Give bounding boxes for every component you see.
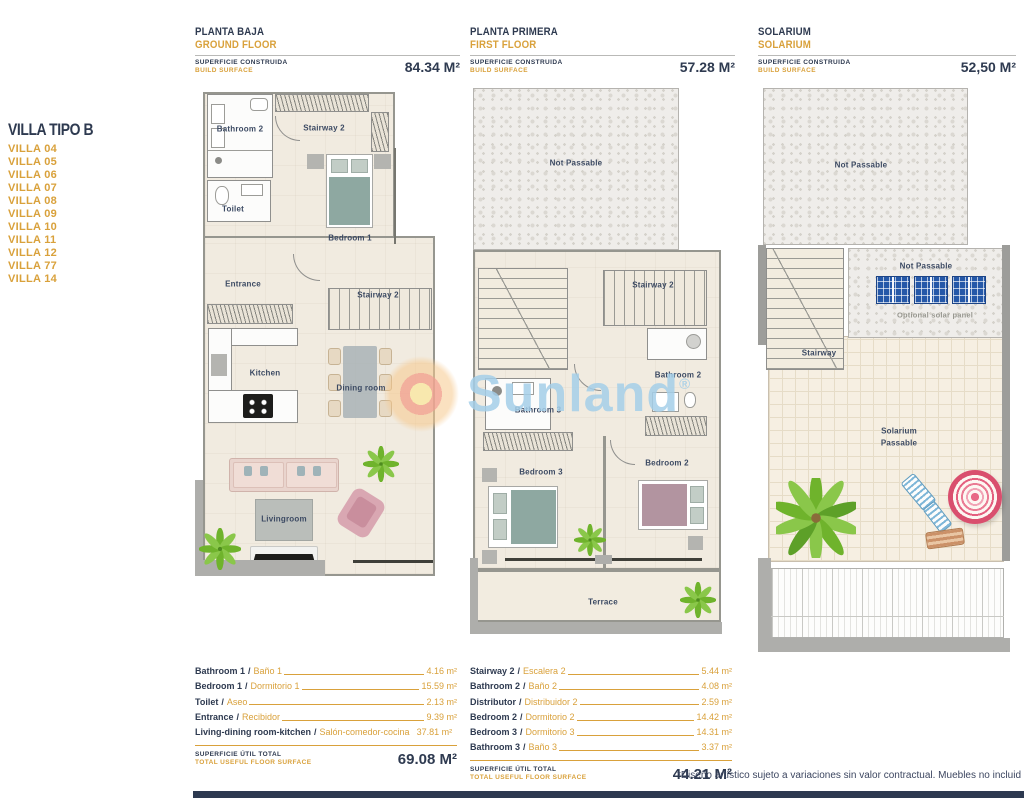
build-surface-value: 84.34 M²	[405, 59, 460, 75]
leader-line	[577, 735, 695, 736]
villa-item: VILLA 11	[8, 234, 56, 246]
room-label-optional-solar: Optional solar panel	[897, 311, 973, 320]
nightstand	[688, 536, 703, 550]
room-area: 5.44 m²	[701, 666, 732, 677]
plant	[574, 524, 606, 556]
separator: /	[523, 742, 526, 753]
leader-line	[580, 704, 700, 705]
room-label-bedroom2: Bedroom 2	[645, 459, 689, 468]
plant	[199, 528, 241, 570]
room-area: 4.08 m²	[701, 681, 732, 692]
bed	[638, 480, 708, 530]
room-name-en: Entrance	[195, 712, 234, 723]
room-label-kitchen: Kitchen	[250, 369, 281, 378]
toilet-fixture	[215, 186, 229, 205]
total-value: 69.08 M²	[398, 751, 457, 768]
separator: /	[314, 727, 317, 738]
window	[505, 558, 595, 561]
plan-title-es: SOLARIUM	[758, 26, 985, 38]
room-name-es: Aseo	[227, 697, 248, 708]
total-label-es: SUPERFICIE ÚTIL TOTAL	[470, 766, 586, 773]
separator: /	[237, 712, 240, 723]
surface-label-en: BUILD SURFACE	[758, 67, 851, 74]
villa-item: VILLA 06	[8, 169, 57, 181]
plan-title-en: FIRST FLOOR	[470, 39, 703, 51]
leader-line	[577, 720, 695, 721]
separator: /	[520, 727, 523, 738]
surface-label-es: SUPERFICIE CONSTRUIDA	[470, 59, 563, 66]
washer	[686, 334, 701, 349]
table-row: Living-dining room-kitchen / Salón-comed…	[195, 727, 457, 738]
room-area: 2.13 m²	[426, 697, 457, 708]
leader-line	[302, 689, 420, 690]
solarium-header: SOLARIUM SOLARIUM SUPERFICIE CONSTRUIDA …	[758, 26, 1016, 75]
toilet-fixture	[684, 392, 696, 408]
villa-item: VILLA 14	[8, 273, 57, 285]
build-surface-value: 52,50 M²	[961, 59, 1016, 75]
room-name-en: Bedroom 3	[470, 727, 517, 738]
first-floor-plan: Not Passable Stairway 2 Bathroom 2 Bathr…	[470, 88, 735, 648]
ground-floor-plan: Bathroom 2 Stairway 2 Toilet Bedroom 1 E…	[195, 88, 460, 593]
room-label-bedroom3: Bedroom 3	[519, 468, 563, 477]
wardrobe	[645, 416, 707, 436]
wall-pier	[595, 555, 612, 564]
total-label-es: SUPERFICIE ÚTIL TOTAL	[195, 751, 311, 758]
room-name-es: Dormitorio 2	[526, 712, 575, 723]
surface-label-es: SUPERFICIE CONSTRUIDA	[758, 59, 851, 66]
room-label-dining: Dining room	[336, 384, 385, 393]
shower-divider	[208, 150, 272, 151]
room-label-stairway2: Stairway 2	[632, 281, 674, 290]
table-row: Bedroom 2 / Dormitorio 2 14.42 m²	[470, 712, 732, 723]
room-name-es: Escalera 2	[523, 666, 566, 677]
parasol	[948, 470, 1002, 524]
room-name-es: Baño 1	[254, 666, 283, 677]
leader-line	[249, 704, 424, 705]
room-area: 9.39 m²	[426, 712, 457, 723]
table-row: Toilet / Aseo 2.13 m²	[195, 697, 457, 708]
ground-floor-table: Bathroom 1 / Baño 1 4.16 m² Bedroom 1 / …	[195, 666, 457, 768]
stairway-room	[478, 268, 568, 370]
solar-panel	[876, 276, 910, 304]
plan-title-es: PLANTA PRIMERA	[470, 26, 703, 38]
exterior-wall	[470, 558, 478, 634]
leader-line	[282, 720, 424, 721]
room-name-en: Bathroom 2	[470, 681, 520, 692]
divider	[470, 55, 735, 56]
room-label-entrance: Entrance	[225, 280, 261, 289]
total-label-en: TOTAL USEFUL FLOOR SURFACE	[195, 759, 311, 766]
leader-line	[568, 674, 700, 675]
table-row: Bathroom 2 / Baño 2 4.08 m²	[470, 681, 732, 692]
separator: /	[518, 666, 521, 677]
exterior-wall	[1002, 245, 1010, 561]
room-label-living: Livingroom	[261, 515, 307, 524]
room-area: 14.42 m²	[696, 712, 732, 723]
separator: /	[520, 712, 523, 723]
wardrobe	[275, 94, 369, 112]
room-area: 3.37 m²	[701, 742, 732, 753]
wardrobe	[483, 432, 573, 451]
page-title: VILLA TIPO B	[8, 120, 93, 140]
villa-item: VILLA 77	[8, 260, 57, 272]
room-name-es: Baño 2	[529, 681, 558, 692]
room-name-en: Living-dining room-kitchen	[195, 727, 311, 738]
chair	[379, 348, 392, 365]
sink	[211, 104, 225, 124]
room-label-passable: Passable	[881, 439, 917, 448]
leader-line	[284, 674, 424, 675]
solarium-plan: Not Passable Not Passable Optional solar…	[758, 88, 1018, 664]
disclaimer-text: *Diseño artístico sujeto a variaciones s…	[677, 770, 1021, 781]
room-name-es: Dormitorio 1	[251, 681, 300, 692]
separator: /	[248, 666, 251, 677]
separator: /	[523, 681, 526, 692]
stairway	[603, 270, 707, 326]
bed	[488, 486, 558, 548]
exterior-wall	[470, 622, 722, 634]
room-name-en: Distributor	[470, 697, 516, 708]
room-name-es: Distribuidor 2	[525, 697, 578, 708]
room-name-es: Recibidor	[242, 712, 280, 723]
room-name-en: Bedroom 1	[195, 681, 242, 692]
leader-line	[559, 750, 699, 751]
table-row: Bedroom 3 / Dormitorio 3 14.31 m²	[470, 727, 732, 738]
room-area: 15.59 m²	[421, 681, 457, 692]
shower-drain	[492, 386, 502, 396]
first-floor-header: PLANTA PRIMERA FIRST FLOOR SUPERFICIE CO…	[470, 26, 735, 75]
window	[394, 148, 396, 244]
room-area: 2.59 m²	[701, 697, 732, 708]
footer-bar	[193, 791, 1024, 798]
solar-panel	[952, 276, 986, 304]
nightstand	[374, 154, 391, 169]
floorplan-page: VILLA TIPO B VILLA 04 VILLA 05 VILLA 06 …	[0, 0, 1024, 800]
dining-table	[343, 346, 377, 418]
room-name-es: Baño 3	[529, 742, 558, 753]
plant	[363, 446, 399, 482]
room-name-es: Salón-comedor-cocina	[320, 727, 410, 738]
room-area: 37.81 m²	[417, 727, 453, 738]
room-label-bedroom1: Bedroom 1	[328, 234, 372, 243]
palm-tree	[776, 478, 856, 558]
plant	[680, 582, 716, 618]
villa-item: VILLA 12	[8, 247, 57, 259]
pergola-rail	[771, 616, 1004, 617]
ground-floor-header: PLANTA BAJA GROUND FLOOR SUPERFICIE CONS…	[195, 26, 460, 75]
room-name-en: Bedroom 2	[470, 712, 517, 723]
room-area: 14.31 m²	[696, 727, 732, 738]
divider	[758, 55, 1016, 56]
villa-item: VILLA 05	[8, 156, 57, 168]
shower-drain	[215, 157, 222, 164]
villa-item: VILLA 09	[8, 208, 57, 220]
room-label-not-passable: Not Passable	[835, 161, 888, 170]
room-label-solarium: Solarium	[881, 427, 917, 436]
room-label-stairway2-mid: Stairway 2	[357, 291, 399, 300]
table-row: Distributor / Distribuidor 2 2.59 m²	[470, 697, 732, 708]
table-row: Bedroom 1 / Dormitorio 1 15.59 m²	[195, 681, 457, 692]
separator: /	[245, 681, 248, 692]
divider	[195, 55, 460, 56]
room-label-terrace: Terrace	[588, 598, 618, 607]
window	[353, 560, 433, 563]
villa-item: VILLA 04	[8, 143, 57, 155]
table-row: Stairway 2 / Escalera 2 5.44 m²	[470, 666, 732, 677]
plan-title-en: GROUND FLOOR	[195, 39, 428, 51]
build-surface-value: 57.28 M²	[680, 59, 735, 75]
room-name-en: Stairway 2	[470, 666, 515, 677]
plan-title-en: SOLARIUM	[758, 39, 985, 51]
plan-title-es: PLANTA BAJA	[195, 26, 428, 38]
total-row: SUPERFICIE ÚTIL TOTAL TOTAL USEFUL FLOOR…	[195, 745, 457, 768]
room-label-not-passable-strip: Not Passable	[900, 262, 953, 271]
sofa	[229, 458, 339, 492]
exterior-wall	[758, 638, 1010, 652]
room-area: 4.16 m²	[426, 666, 457, 677]
sink	[241, 184, 263, 196]
first-floor-table: Stairway 2 / Escalera 2 5.44 m² Bathroom…	[470, 666, 732, 783]
room-label-toilet: Toilet	[222, 205, 244, 214]
surface-label-es: SUPERFICIE CONSTRUIDA	[195, 59, 288, 66]
room-name-en: Toilet	[195, 697, 218, 708]
room-label-bathroom3: Bathroom 3	[515, 406, 561, 415]
toilet-fixture	[250, 98, 268, 111]
pergola	[771, 568, 1004, 638]
room-name-es: Dormitorio 3	[526, 727, 575, 738]
nightstand	[482, 550, 497, 564]
chair	[328, 348, 341, 365]
total-label-en: TOTAL USEFUL FLOOR SURFACE	[470, 774, 586, 781]
sink	[652, 392, 679, 412]
separator: /	[519, 697, 522, 708]
leader-line	[559, 689, 699, 690]
window	[612, 558, 702, 561]
room-label-stairway2: Stairway 2	[303, 124, 345, 133]
fridge	[211, 354, 227, 376]
room-label-bathroom2: Bathroom 2	[217, 125, 263, 134]
separator: /	[221, 697, 224, 708]
villa-item: VILLA 08	[8, 195, 57, 207]
nightstand	[307, 154, 324, 169]
not-passable-roof	[473, 88, 679, 250]
solar-panel	[914, 276, 948, 304]
villa-item: VILLA 10	[8, 221, 57, 233]
room-label-stairway: Stairway	[802, 349, 837, 358]
table-row: Entrance / Recibidor 9.39 m²	[195, 712, 457, 723]
surface-label-en: BUILD SURFACE	[195, 67, 288, 74]
room-label-not-passable: Not Passable	[550, 159, 603, 168]
room-label-bathroom2: Bathroom 2	[655, 371, 701, 380]
exterior-wall	[758, 558, 771, 652]
table-row: Bathroom 1 / Baño 1 4.16 m²	[195, 666, 457, 677]
cooktop	[243, 394, 273, 418]
room-name-en: Bathroom 1	[195, 666, 245, 677]
exterior-wall	[758, 245, 766, 345]
surface-label-en: BUILD SURFACE	[470, 67, 563, 74]
bed	[326, 154, 373, 228]
table-row: Bathroom 3 / Baño 3 3.37 m²	[470, 742, 732, 753]
entrance-mat	[207, 304, 293, 324]
room-name-en: Bathroom 3	[470, 742, 520, 753]
nightstand	[482, 468, 497, 482]
chair	[328, 400, 341, 417]
wardrobe	[371, 112, 389, 152]
chair	[379, 400, 392, 417]
sink	[512, 382, 534, 395]
villa-item: VILLA 07	[8, 182, 57, 194]
